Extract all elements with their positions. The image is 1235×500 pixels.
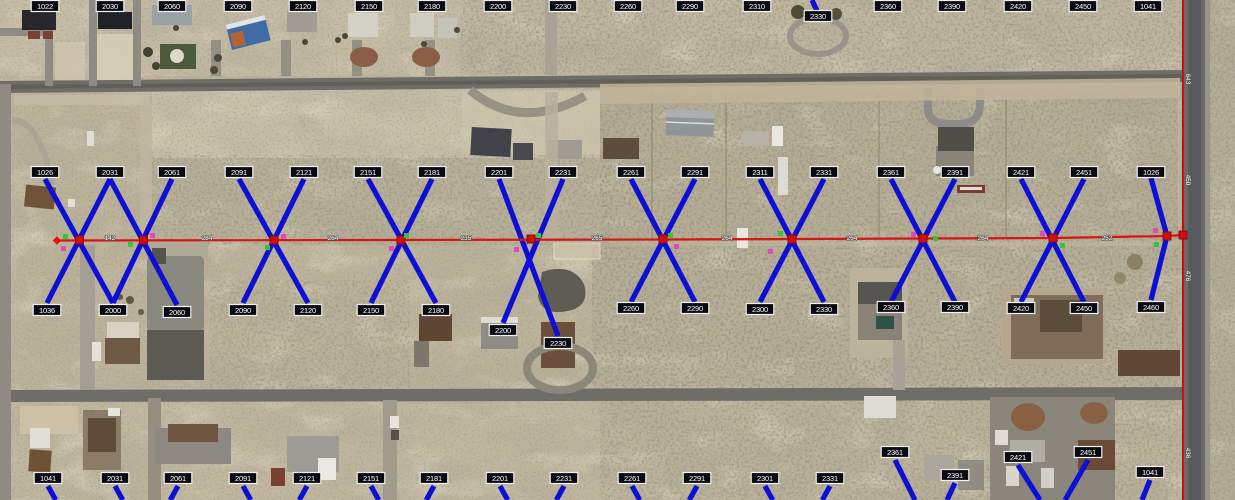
- svg-text:2291: 2291: [689, 474, 705, 483]
- svg-text:2450: 2450: [1076, 304, 1092, 313]
- svg-text:2290: 2290: [682, 2, 698, 11]
- svg-text:2200: 2200: [490, 2, 506, 11]
- svg-text:2460: 2460: [1143, 303, 1159, 312]
- svg-text:284: 284: [202, 235, 213, 242]
- svg-text:2091: 2091: [235, 474, 251, 483]
- svg-text:264: 264: [722, 235, 733, 242]
- svg-text:2090: 2090: [230, 2, 246, 11]
- svg-text:2420: 2420: [1013, 304, 1029, 313]
- svg-text:1041: 1041: [1140, 2, 1156, 11]
- svg-text:2391: 2391: [947, 471, 963, 480]
- svg-text:436: 436: [1184, 448, 1191, 459]
- svg-text:2450: 2450: [1075, 2, 1091, 11]
- svg-text:2090: 2090: [235, 306, 251, 315]
- svg-text:2361: 2361: [887, 448, 903, 457]
- svg-text:2390: 2390: [947, 303, 963, 312]
- svg-text:142: 142: [105, 235, 116, 242]
- svg-text:2291: 2291: [687, 168, 703, 177]
- svg-text:2330: 2330: [810, 12, 826, 21]
- svg-text:2260: 2260: [620, 2, 636, 11]
- svg-text:2331: 2331: [822, 474, 838, 483]
- svg-text:2200: 2200: [495, 326, 511, 335]
- svg-text:1036: 1036: [39, 306, 55, 315]
- svg-text:2330: 2330: [816, 305, 832, 314]
- svg-text:2060: 2060: [164, 2, 180, 11]
- svg-text:2230: 2230: [550, 339, 566, 348]
- svg-text:450: 450: [1184, 175, 1191, 186]
- svg-text:2181: 2181: [424, 168, 440, 177]
- svg-text:2421: 2421: [1013, 168, 1029, 177]
- svg-text:2311: 2311: [752, 168, 767, 177]
- svg-text:2000: 2000: [105, 306, 121, 315]
- svg-text:2231: 2231: [555, 168, 571, 177]
- svg-text:2290: 2290: [687, 304, 703, 313]
- svg-text:2061: 2061: [170, 474, 186, 483]
- svg-text:2091: 2091: [231, 168, 247, 177]
- svg-text:2360: 2360: [880, 2, 896, 11]
- svg-text:2421: 2421: [1010, 453, 1026, 462]
- svg-text:2031: 2031: [107, 474, 123, 483]
- svg-text:2061: 2061: [164, 168, 180, 177]
- svg-text:2151: 2151: [363, 474, 379, 483]
- svg-text:2150: 2150: [363, 306, 379, 315]
- svg-text:2301: 2301: [757, 474, 773, 483]
- svg-text:2231: 2231: [556, 474, 572, 483]
- svg-text:2060: 2060: [169, 308, 185, 317]
- svg-text:264: 264: [978, 235, 989, 242]
- svg-text:264: 264: [328, 235, 339, 242]
- svg-text:2031: 2031: [102, 168, 118, 177]
- svg-text:2150: 2150: [361, 2, 377, 11]
- svg-text:2180: 2180: [428, 306, 444, 315]
- svg-text:235: 235: [461, 235, 472, 242]
- svg-text:2310: 2310: [749, 2, 765, 11]
- svg-text:1041: 1041: [40, 474, 56, 483]
- svg-text:2181: 2181: [426, 474, 442, 483]
- svg-text:643: 643: [1184, 74, 1191, 85]
- svg-text:2151: 2151: [360, 168, 376, 177]
- svg-text:2361: 2361: [883, 168, 899, 177]
- svg-text:2030: 2030: [102, 2, 118, 11]
- svg-text:2261: 2261: [623, 168, 639, 177]
- svg-text:2390: 2390: [944, 2, 960, 11]
- svg-text:2201: 2201: [491, 168, 507, 177]
- svg-text:2360: 2360: [883, 303, 899, 312]
- svg-text:265: 265: [592, 235, 603, 242]
- svg-text:2451: 2451: [1080, 448, 1096, 457]
- svg-text:2121: 2121: [299, 474, 315, 483]
- svg-text:1026: 1026: [37, 168, 53, 177]
- svg-text:2300: 2300: [752, 305, 768, 314]
- svg-text:2261: 2261: [624, 474, 640, 483]
- svg-text:2260: 2260: [623, 304, 639, 313]
- svg-text:264: 264: [847, 235, 858, 242]
- svg-text:2121: 2121: [296, 168, 312, 177]
- svg-text:2120: 2120: [295, 2, 311, 11]
- svg-text:2230: 2230: [555, 2, 571, 11]
- svg-text:2331: 2331: [816, 168, 832, 177]
- svg-text:2391: 2391: [947, 168, 963, 177]
- svg-text:476: 476: [1184, 271, 1191, 282]
- svg-text:2420: 2420: [1010, 2, 1026, 11]
- svg-text:2201: 2201: [492, 474, 508, 483]
- svg-text:1026: 1026: [1143, 168, 1159, 177]
- svg-text:1041: 1041: [1142, 468, 1158, 477]
- svg-text:252: 252: [1102, 235, 1113, 242]
- svg-text:2120: 2120: [300, 306, 316, 315]
- svg-text:2180: 2180: [424, 2, 440, 11]
- svg-text:2451: 2451: [1076, 168, 1092, 177]
- svg-text:1022: 1022: [37, 2, 53, 11]
